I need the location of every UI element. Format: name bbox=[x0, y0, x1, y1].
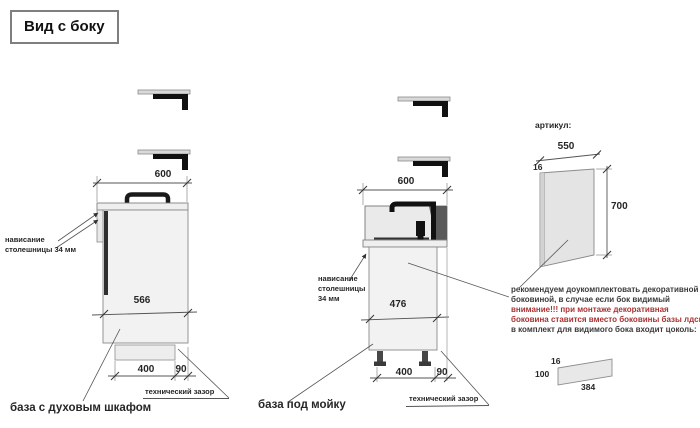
cabinet-leg-icon bbox=[419, 351, 431, 366]
overhang-label: 34 мм bbox=[318, 295, 340, 303]
corner-bracket-icon bbox=[138, 150, 190, 170]
sink-base-drawing bbox=[288, 97, 509, 407]
plinth bbox=[115, 345, 175, 360]
dim-strip-height: 100 bbox=[535, 370, 549, 379]
cabinet-name: база под мойку bbox=[258, 400, 346, 412]
overhang-label: столешницы bbox=[318, 285, 365, 293]
countertop bbox=[363, 240, 447, 247]
article-heading: артикул: bbox=[535, 121, 571, 130]
drawing-linework bbox=[0, 0, 700, 428]
dim-strip-thickness: 16 bbox=[551, 357, 560, 366]
countertop bbox=[97, 203, 188, 210]
decor-panel-drawing bbox=[519, 151, 612, 386]
view-title: Вид с боку bbox=[10, 10, 119, 44]
dim-top-width: 600 bbox=[155, 170, 172, 180]
corner-bracket-icon bbox=[398, 157, 450, 177]
dim-plinth-depth: 400 bbox=[396, 368, 413, 378]
cabinet-leg-icon bbox=[374, 351, 386, 366]
overhang-label: нависание bbox=[5, 236, 45, 244]
dim-strip-length: 384 bbox=[581, 383, 595, 392]
note-line: рекомендуем доукомплектовать декоративно… bbox=[511, 286, 698, 294]
side-view-drawing: Вид с боку 600 нависание столешницы 34 м… bbox=[0, 0, 700, 428]
overhang-label: нависание bbox=[318, 275, 358, 283]
dim-top-width: 600 bbox=[398, 177, 415, 187]
note-warning-line: боковина ставится вместо боковины базы л… bbox=[511, 316, 700, 324]
corner-bracket-icon bbox=[138, 90, 190, 110]
note-line: в комплект для видимого бока входит цоко… bbox=[511, 326, 697, 334]
dim-tech-gap: 90 bbox=[436, 368, 447, 378]
note-warning-line: внимание!!! при монтаже декоративная bbox=[511, 306, 669, 314]
overhang-label: столешницы 34 мм bbox=[5, 246, 76, 254]
dim-tech-gap: 90 bbox=[175, 365, 186, 375]
note-line: боковиной, в случае если бок видимый bbox=[511, 296, 670, 304]
cabinet-name: база с духовым шкафом bbox=[10, 403, 151, 415]
door-edge bbox=[104, 211, 108, 295]
oven-base-drawing bbox=[56, 90, 229, 401]
dim-plinth-depth: 400 bbox=[138, 365, 155, 375]
dim-inner-depth: 566 bbox=[134, 296, 151, 306]
tech-gap-label: технический зазор bbox=[409, 395, 478, 403]
dim-inner-depth: 476 bbox=[390, 300, 407, 310]
corner-bracket-icon bbox=[398, 97, 450, 117]
tech-gap-label: технический зазор bbox=[145, 388, 214, 396]
dim-panel-thickness: 16 bbox=[533, 163, 542, 172]
dim-panel-width: 550 bbox=[558, 142, 575, 152]
cabinet-body bbox=[103, 210, 188, 343]
decor-panel bbox=[540, 169, 594, 267]
dim-panel-height: 700 bbox=[611, 202, 628, 212]
oven-handle-icon bbox=[127, 195, 168, 204]
